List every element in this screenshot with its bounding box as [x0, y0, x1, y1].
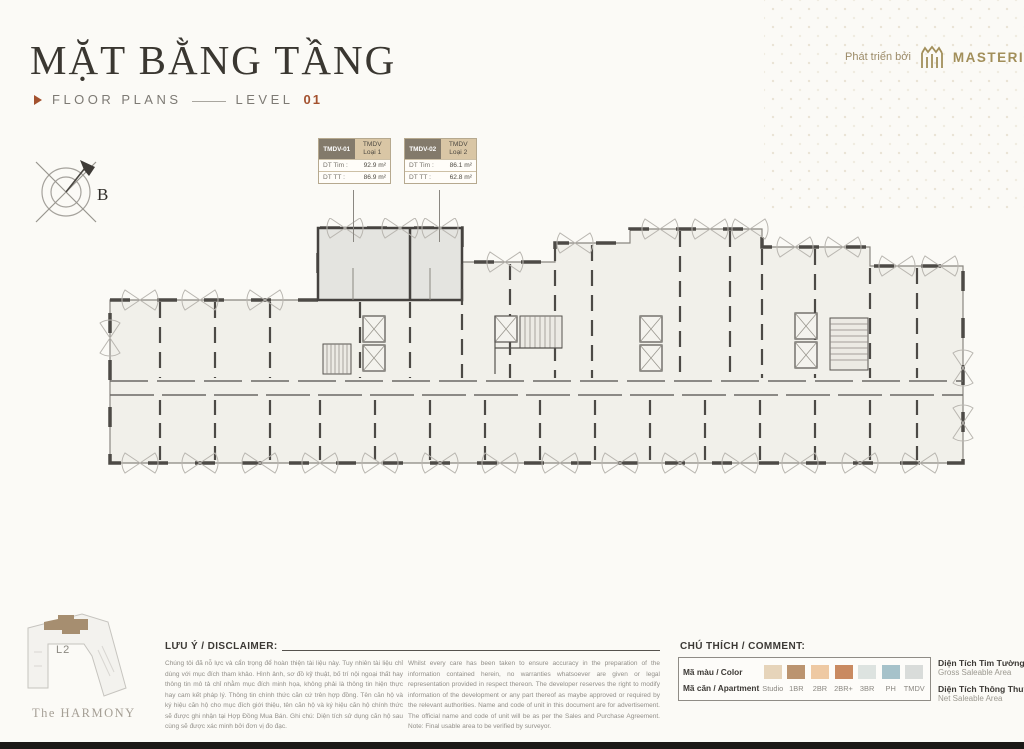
legend-box: Mã màu / Color Mã căn / Apartment Studio… — [678, 657, 931, 701]
subtitle-floor-plans: FLOOR PLANS — [52, 92, 182, 107]
unit-type-line1: TMDV — [449, 141, 468, 149]
keymap-level-label: L2 — [56, 644, 70, 656]
legend-swatch-3br — [855, 665, 879, 679]
unit-type: TMDV Loại 2 — [441, 139, 477, 159]
net-area-value: 62.8 m² — [450, 174, 472, 181]
net-area-label: DT TT : — [323, 174, 345, 181]
unit-callout-tmdv-01: TMDV-01 TMDV Loại 1 DT Tim : 92.9 m² DT … — [318, 138, 391, 184]
legend-label-2br-plus: 2BR+ — [832, 684, 856, 693]
unit-net-area-row: DT TT : 86.9 m² — [319, 171, 390, 183]
stair-core-right — [795, 313, 868, 370]
legend-label-1br: 1BR — [785, 684, 809, 693]
unit-type-line2: Loại 2 — [449, 149, 467, 157]
legend-apartment-row: Mã căn / Apartment Studio 1BR 2BR 2BR+ 3… — [683, 683, 926, 693]
net-area-label: DT TT : — [409, 174, 431, 181]
legend-swatch-studio — [761, 665, 785, 679]
unit-type-line1: TMDV — [363, 141, 382, 149]
page-title: MẶT BẰNG TẦNG — [30, 36, 396, 84]
compass-north-label: B — [97, 185, 108, 204]
floor-plan-page: { "page": { "title": "MẶT BẰNG TẦNG", "s… — [0, 0, 1024, 749]
disclaimer-heading: LƯU Ý / DISCLAIMER: — [165, 641, 278, 652]
legend-apartment-row-label: Mã căn / Apartment — [683, 683, 761, 693]
decor-dot-pattern — [764, 0, 1024, 210]
legend-label-studio: Studio — [761, 684, 785, 693]
gross-area-note-vi: Diện Tích Tim Tường - DT Tim — [938, 658, 1024, 668]
gross-area-note-en: Gross Saleable Area — [938, 668, 1024, 677]
legend-swatch-2br — [808, 665, 832, 679]
unit-type: TMDV Loại 1 — [355, 139, 391, 159]
level-number: 01 — [304, 92, 322, 107]
gross-area-value: 92.9 m² — [364, 162, 386, 169]
gross-area-label: DT Tim : — [409, 162, 434, 169]
legend-color-row: Mã màu / Color — [683, 665, 926, 679]
legend-heading: CHÚ THÍCH / COMMENT: — [680, 641, 805, 652]
disclaimer-text-vi: Chúng tôi đã nỗ lực và cẩn trọng để hoàn… — [165, 659, 403, 733]
legend-color-row-label: Mã màu / Color — [683, 667, 761, 677]
unit-callout-tmdv-02: TMDV-02 TMDV Loại 2 DT Tim : 86.1 m² DT … — [404, 138, 477, 184]
subtitle-divider-line — [192, 101, 226, 102]
triangle-bullet-icon — [34, 95, 42, 105]
gross-area-value: 86.1 m² — [450, 162, 472, 169]
bottom-bar — [0, 742, 1024, 749]
developer-name: MASTERISE HOMES — [953, 50, 1024, 65]
unit-gross-area-row: DT Tim : 92.9 m² — [319, 159, 390, 171]
gross-area-label: DT Tim : — [323, 162, 348, 169]
developer-brand: Phát triển bởi MASTERISE HOMES — [845, 44, 1024, 70]
unit-type-line2: Loại 1 — [363, 149, 381, 157]
leader-line-tmdv-02 — [439, 190, 440, 242]
legend-area-notes: Diện Tích Tim Tường - DT Tim Gross Salea… — [938, 658, 1024, 710]
subtitle-level-label: LEVEL — [236, 92, 294, 107]
net-area-note-vi: Diện Tích Thông Thuỷ - DT TT — [938, 684, 1024, 694]
unit-code: TMDV-01 — [319, 139, 355, 159]
leader-line-tmdv-01 — [353, 190, 354, 242]
legend-swatch-tmdv — [902, 665, 926, 679]
legend-label-2br: 2BR — [808, 684, 832, 693]
unit-code: TMDV-02 — [405, 139, 441, 159]
legend-swatch-ph — [879, 665, 903, 679]
net-area-note-en: Net Saleable Area — [938, 694, 1024, 703]
site-key-map — [22, 610, 142, 705]
legend-label-3br: 3BR — [855, 684, 879, 693]
project-name: The HARMONY — [32, 706, 136, 721]
unit-net-area-row: DT TT : 62.8 m² — [405, 171, 476, 183]
unit-gross-area-row: DT Tim : 86.1 m² — [405, 159, 476, 171]
legend-label-tmdv: TMDV — [902, 684, 926, 693]
page-subtitle: FLOOR PLANS LEVEL 01 — [34, 92, 322, 107]
disclaimer-rule-line — [282, 650, 660, 651]
floor-plan-drawing — [95, 218, 975, 548]
legend-label-ph: PH — [879, 684, 903, 693]
developer-prefix: Phát triển bởi — [845, 51, 911, 63]
disclaimer-text-en: Whilst every care has been taken to ensu… — [408, 659, 660, 733]
legend-swatch-1br — [785, 665, 809, 679]
highlighted-tmdv-units — [318, 228, 462, 300]
legend-swatch-2br-plus — [832, 665, 856, 679]
masterise-logo-icon — [919, 44, 945, 70]
net-area-value: 86.9 m² — [364, 174, 386, 181]
